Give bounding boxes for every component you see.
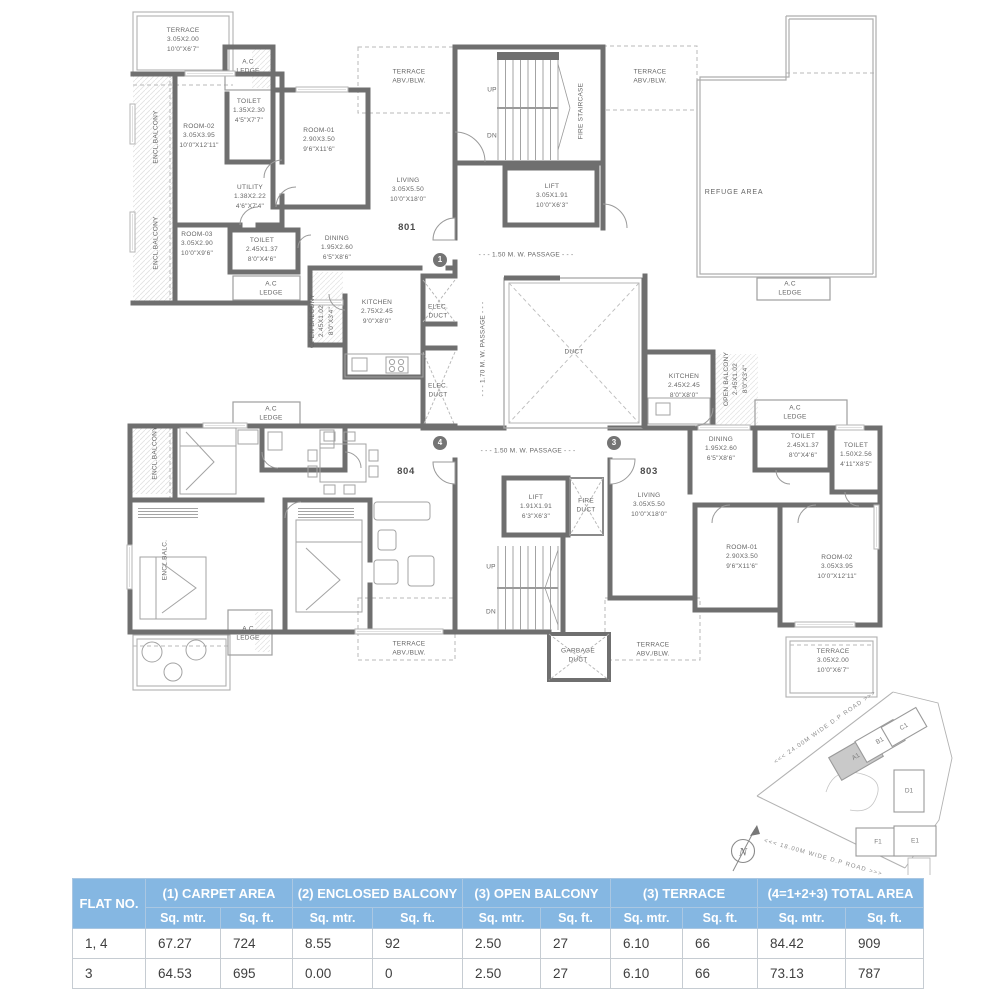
up-label-top: UP bbox=[487, 85, 497, 94]
cell-value: 909 bbox=[846, 929, 924, 959]
col-header-enclosed-balcony: (2) ENCLOSED BALCONY bbox=[293, 879, 463, 908]
staircase-bottom bbox=[497, 546, 558, 630]
room-label-terrace-803: TERRACE3.05X2.0010'0"X6'7" bbox=[817, 647, 850, 675]
duct-label: DUCT bbox=[564, 347, 583, 356]
room-label-dining-801: DINING1.95X2.606'5"X8'6" bbox=[321, 234, 353, 262]
cell-value: 6.10 bbox=[611, 959, 683, 989]
ac-ledge-label-5: A.CLEDGE bbox=[259, 405, 282, 424]
cell-value: 787 bbox=[846, 959, 924, 989]
unit-header-sqmtr-5: Sq. mtr. bbox=[758, 908, 846, 929]
dn-label-bottom: DN bbox=[486, 607, 496, 616]
unit-header-sqmtr-4: Sq. mtr. bbox=[611, 908, 683, 929]
cell-flat: 1, 4 bbox=[73, 929, 146, 959]
unit-circle-3: 3 bbox=[607, 436, 621, 450]
encl-balcony-label-3: ENCL.BALCONY bbox=[150, 426, 159, 479]
room-label-living-801: LIVING3.05X5.5010'0"X18'0" bbox=[390, 176, 426, 204]
col-header-terrace: (3) TERRACE bbox=[611, 879, 758, 908]
cell-value: 66 bbox=[683, 929, 758, 959]
fire-duct-label: FIREDUCT bbox=[576, 497, 595, 516]
cell-value: 92 bbox=[373, 929, 463, 959]
staircase-top bbox=[497, 52, 570, 160]
ac-ledge-label-4: A.CLEDGE bbox=[783, 404, 806, 423]
encl-balc-label: ENCL.BALC. bbox=[160, 540, 169, 580]
cell-value: 0.00 bbox=[293, 959, 373, 989]
encl-balcony-label-2: ENCL.BALCONY bbox=[151, 216, 160, 269]
unit-circle-1: 1 bbox=[433, 253, 447, 267]
garbage-duct-label: GARBAGEDUCT bbox=[561, 647, 595, 666]
room-label-room01-801: ROOM-012.90X3.509'6"X11'6" bbox=[303, 126, 335, 154]
unit-header-sqmtr-3: Sq. mtr. bbox=[463, 908, 541, 929]
room-label-kitchen-801: KITCHEN2.75X2.459'0"X8'0" bbox=[361, 298, 393, 326]
cell-value: 8.55 bbox=[293, 929, 373, 959]
room-label-lift-bottom: LIFT1.91X1.916'3"X6'3" bbox=[520, 493, 552, 521]
table-row-flat-3: 3 64.53 695 0.00 0 2.50 27 6.10 66 73.13… bbox=[73, 959, 924, 989]
col-header-total-area: (4=1+2+3) TOTAL AREA bbox=[758, 879, 924, 908]
passage-label-top: - - - 1.50 M. W. PASSAGE - - - bbox=[479, 250, 574, 259]
room-label-room02-803: ROOM-023.05X3.9510'0"X12'11" bbox=[817, 553, 856, 581]
cell-value: 695 bbox=[221, 959, 293, 989]
room-label-lift-top: LIFT3.05X1.9110'0"X6'3" bbox=[536, 182, 568, 210]
elec-duct-label-2: ELEC.DUCT bbox=[428, 382, 448, 401]
floor-plan-page: TERRACE3.05X2.0010'0"X6'7" TOILET1.35X2.… bbox=[0, 0, 1000, 1000]
ac-ledge-label-3: A.CLEDGE bbox=[778, 280, 801, 299]
area-statement-table: FLAT NO. (1) CARPET AREA (2) ENCLOSED BA… bbox=[72, 878, 924, 989]
flat-number-804: 804 bbox=[397, 465, 415, 479]
room-label-toilet-a-801: TOILET1.35X2.304'5"X7'7" bbox=[233, 97, 265, 125]
cell-value: 64.53 bbox=[146, 959, 221, 989]
table-header-groups: FLAT NO. (1) CARPET AREA (2) ENCLOSED BA… bbox=[73, 879, 924, 908]
col-header-carpet-area: (1) CARPET AREA bbox=[146, 879, 293, 908]
unit-header-sqft-1: Sq. ft. bbox=[221, 908, 293, 929]
up-label-bottom: UP bbox=[486, 562, 496, 571]
unit-header-sqft-5: Sq. ft. bbox=[846, 908, 924, 929]
refuge-outline bbox=[697, 16, 876, 277]
building-label-f1: F1 bbox=[874, 839, 882, 846]
room-label-toilet-a-803: TOILET2.45X1.378'0"X4'6" bbox=[787, 432, 819, 460]
passage-label-bottom: - - - 1.50 M. W. PASSAGE - - - bbox=[481, 446, 576, 455]
elec-duct-label-1: ELEC.DUCT bbox=[428, 303, 448, 322]
windows bbox=[127, 71, 879, 634]
room-label-dining-803: DINING1.95X2.606'5"X8'6" bbox=[705, 435, 737, 463]
unit-header-sqft-3: Sq. ft. bbox=[541, 908, 611, 929]
ac-ledge-label-2: A.CLEDGE bbox=[259, 280, 282, 299]
encl-balcony-label-1: ENCL.BALCONY bbox=[151, 110, 160, 163]
cell-value: 84.42 bbox=[758, 929, 846, 959]
terrace-abv-label-4: TERRACEABV./BLW. bbox=[636, 641, 669, 660]
passage-label-left: - - - 1.70 M. W. PASSAGE - - - bbox=[478, 302, 487, 397]
fire-staircase-label: FIRE STAIRCASE bbox=[576, 83, 585, 139]
table-header-units: Sq. mtr. Sq. ft. Sq. mtr. Sq. ft. Sq. mt… bbox=[73, 908, 924, 929]
cell-value: 66 bbox=[683, 959, 758, 989]
room-label-open-balcony-801: OPEN BALCONY2.45X1.028'0"X3'4" bbox=[308, 294, 336, 348]
room-label-living-803: LIVING3.05X5.5010'0"X18'0" bbox=[631, 491, 667, 519]
unit-header-sqmtr-2: Sq. mtr. bbox=[293, 908, 373, 929]
room-label-toilet-b-801: TOILET2.45X1.378'0"X4'6" bbox=[246, 236, 278, 264]
unit-header-sqmtr-1: Sq. mtr. bbox=[146, 908, 221, 929]
terrace-abv-label-2: TERRACEABV./BLW. bbox=[633, 68, 666, 87]
building-label-e1: E1 bbox=[911, 838, 919, 845]
flat-number-803: 803 bbox=[640, 465, 658, 479]
cell-flat: 3 bbox=[73, 959, 146, 989]
flat-number-801: 801 bbox=[398, 221, 416, 235]
cell-value: 67.27 bbox=[146, 929, 221, 959]
room-label-open-balcony-803: OPEN BALCONY2.45X1.028'0"X3'4" bbox=[722, 352, 750, 406]
north-label: N bbox=[739, 845, 747, 860]
ac-ledge-label-1: A.CLEDGE bbox=[236, 58, 259, 77]
cell-value: 27 bbox=[541, 929, 611, 959]
dn-label-top: DN bbox=[487, 131, 497, 140]
cell-value: 724 bbox=[221, 929, 293, 959]
cell-value: 2.50 bbox=[463, 929, 541, 959]
col-header-open-balcony: (3) OPEN BALCONY bbox=[463, 879, 611, 908]
table-row-flat-1-4: 1, 4 67.27 724 8.55 92 2.50 27 6.10 66 8… bbox=[73, 929, 924, 959]
building-label-d1: D1 bbox=[905, 788, 913, 795]
terrace-abv-label-1: TERRACEABV./BLW. bbox=[392, 68, 425, 87]
cell-value: 27 bbox=[541, 959, 611, 989]
ac-ledge-label-6: A.CLEDGE bbox=[236, 625, 259, 644]
room-label-toilet-b-803: TOILET1.50X2.564'11"X8'5" bbox=[840, 441, 872, 469]
unit-header-sqft-2: Sq. ft. bbox=[373, 908, 463, 929]
room-label-room03-801: ROOM-033.05X2.9010'0"X9'6" bbox=[181, 230, 213, 258]
unit-circle-4: 4 bbox=[433, 436, 447, 450]
cell-value: 73.13 bbox=[758, 959, 846, 989]
room-label-terrace-801: TERRACE3.05X2.0010'0"X6'7" bbox=[167, 26, 200, 54]
room-label-utility-801: UTILITY1.38X2.224'6"X7'4" bbox=[234, 183, 266, 211]
room-label-kitchen-803: KITCHEN2.45X2.458'0"X8'0" bbox=[668, 372, 700, 400]
room-label-room01-803: ROOM-012.90X3.509'6"X11'6" bbox=[726, 543, 758, 571]
terrace-abv-label-3: TERRACEABV./BLW. bbox=[392, 640, 425, 659]
refuge-area-label: REFUGE AREA bbox=[705, 188, 764, 198]
cell-value: 2.50 bbox=[463, 959, 541, 989]
cell-value: 0 bbox=[373, 959, 463, 989]
cell-value: 6.10 bbox=[611, 929, 683, 959]
room-label-room02-801: ROOM-023.05X3.9510'0"X12'11" bbox=[179, 122, 218, 150]
unit-header-sqft-4: Sq. ft. bbox=[683, 908, 758, 929]
col-header-flat-no: FLAT NO. bbox=[73, 879, 146, 929]
